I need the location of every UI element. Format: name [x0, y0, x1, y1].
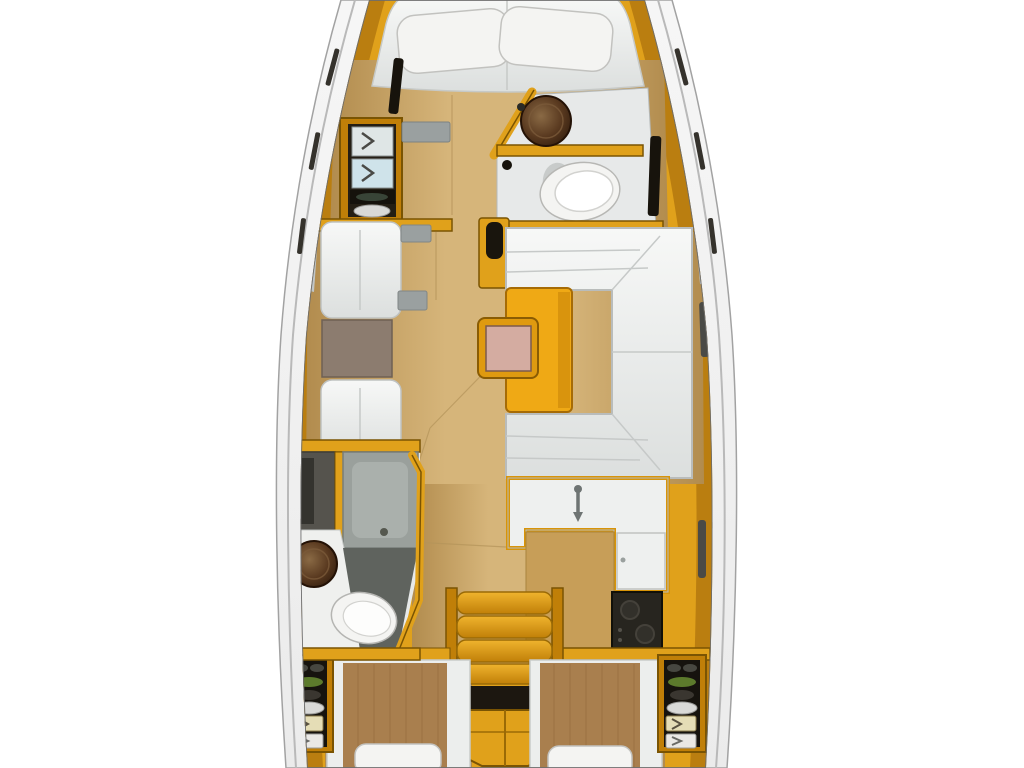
galley-side-slot — [698, 520, 706, 578]
shelf-item — [667, 664, 681, 672]
shelf-unit — [658, 655, 706, 752]
wall-bracket-1 — [401, 225, 431, 242]
stair-tread-3 — [457, 640, 552, 662]
canvas — [0, 0, 1024, 768]
aft-head — [287, 440, 421, 655]
aft-head-fwd-wall — [287, 440, 420, 452]
fwd-wardrobe — [340, 118, 402, 222]
cabin-fwd-wall — [285, 648, 420, 660]
salon-table-shade — [558, 292, 570, 408]
aft-cabin-port — [285, 648, 470, 768]
pillow — [355, 744, 441, 768]
pillow-port — [396, 7, 513, 75]
stairs-fwd-wall — [420, 648, 450, 660]
table-extension — [478, 318, 538, 378]
stair-tread-1 — [457, 592, 552, 614]
plant-icon — [668, 677, 696, 687]
plate-icon — [667, 702, 697, 714]
fridge-handle — [621, 558, 626, 563]
faucet-icon — [517, 103, 525, 111]
fwd-gray-step — [402, 122, 450, 142]
port-salon-table — [322, 320, 392, 377]
shower-drain-icon — [380, 528, 388, 536]
pillow — [548, 746, 632, 768]
port-settee-forward — [321, 222, 401, 318]
bowl-icon — [670, 690, 694, 700]
mast-post — [479, 218, 509, 288]
stove-icon — [612, 592, 662, 648]
pillow-starboard — [498, 5, 615, 73]
v-berth — [372, 0, 644, 92]
forward-head-divider — [497, 145, 643, 156]
shelf-item — [356, 193, 388, 201]
plate-icon — [354, 205, 390, 217]
shower-tray — [352, 462, 408, 538]
yacht-floor-plan — [0, 0, 1024, 768]
shelf-item — [310, 664, 324, 672]
aft-cabin-starboard — [530, 655, 706, 768]
forward-head — [494, 88, 663, 232]
wall-bracket-2 — [398, 291, 427, 310]
shelf-item — [683, 664, 697, 672]
stair-tread-2 — [457, 616, 552, 638]
drain-icon — [502, 160, 512, 170]
